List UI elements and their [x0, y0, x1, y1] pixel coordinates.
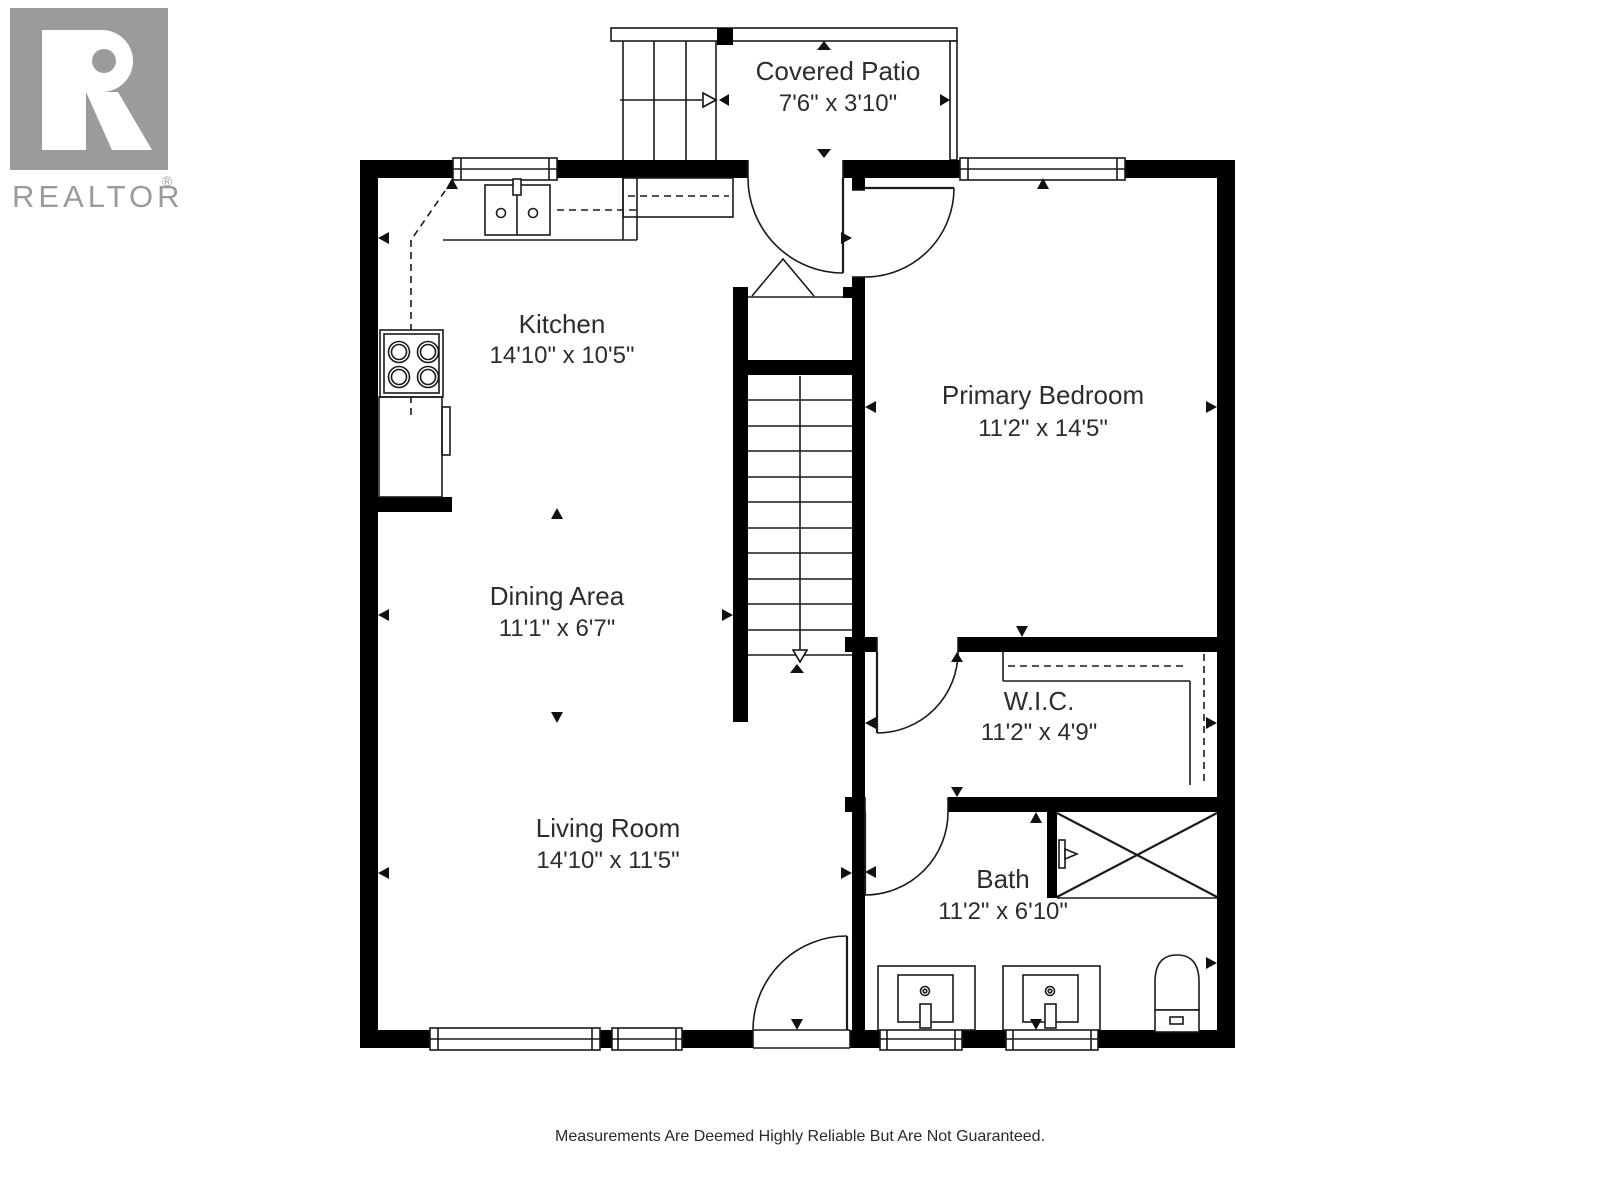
vanity-sink-2	[1003, 966, 1100, 1030]
entry-closet	[748, 259, 843, 297]
toilet-icon	[1155, 955, 1199, 1032]
living-door-swing-arc	[753, 936, 847, 1030]
primary-bedroom-dimensions: 11'2" x 14'5"	[978, 415, 1108, 442]
front-door-swing-arc	[748, 178, 843, 273]
stove-icon	[380, 330, 443, 397]
stair-down-arrow-icon	[793, 650, 807, 662]
measurements-disclaimer: Measurements Are Deemed Highly Reliable …	[555, 1128, 1045, 1145]
exterior-steps	[620, 41, 716, 160]
wic-dimensions: 11'2" x 4'9"	[981, 719, 1098, 746]
living-room-exterior-door	[753, 936, 850, 1048]
hall-bedroom-wall	[852, 277, 865, 812]
patio-top-wall	[611, 28, 957, 41]
bedroom-window	[960, 158, 1125, 180]
covered-patio-dimensions: 7'6" x 3'10"	[779, 90, 897, 117]
label-living-room: Living Room 14'10" x 11'5"	[536, 813, 681, 874]
bath-name: Bath	[976, 864, 1030, 894]
living-room-name: Living Room	[536, 813, 681, 843]
kitchen-window	[453, 158, 557, 180]
bath-window-2	[1006, 1028, 1098, 1050]
living-room-dimensions: 14'10" x 11'5"	[536, 847, 679, 874]
wic-door-swing-arc	[877, 652, 958, 733]
label-primary-bedroom: Primary Bedroom 11'2" x 14'5"	[942, 380, 1144, 442]
label-covered-patio: Covered Patio 7'6" x 3'10"	[756, 56, 921, 117]
bath-door-swing-arc	[865, 812, 948, 895]
dining-area-dimensions: 11'1" x 6'7"	[499, 615, 616, 642]
label-dining-area: Dining Area 11'1" x 6'7"	[490, 581, 625, 642]
left-wall	[360, 160, 378, 1048]
bath-window-1	[880, 1028, 962, 1050]
closet-bottom-wall	[733, 360, 865, 375]
stair-left-wall	[733, 287, 748, 722]
wic-door	[877, 637, 958, 733]
covered-patio-name: Covered Patio	[756, 56, 921, 86]
vanity-sink-1	[878, 966, 975, 1030]
shower-valve-icon	[1059, 840, 1065, 868]
bedroom-door	[852, 188, 954, 277]
wic-name: W.I.C.	[1004, 686, 1075, 716]
wic-bath-wall	[948, 797, 1217, 812]
kitchen-base-cabinet	[379, 397, 450, 497]
realtor-logo: REALTOR ®	[10, 8, 184, 214]
steps-direction-arrow-icon	[703, 93, 716, 107]
right-wall	[1217, 160, 1235, 1048]
label-kitchen: Kitchen 14'10" x 10'5"	[490, 309, 635, 369]
bath-dimensions: 11'2" x 6'10"	[938, 898, 1068, 925]
realtor-logo-text: REALTOR	[12, 179, 184, 214]
kitchen-dimensions: 14'10" x 10'5"	[490, 342, 635, 369]
shower-head-icon	[1065, 849, 1077, 859]
kitchen-sink	[485, 179, 550, 235]
patio-right-wall	[950, 41, 957, 160]
staircase	[748, 376, 852, 673]
registered-trademark-symbol: ®	[162, 173, 173, 189]
front-door	[748, 160, 843, 273]
patio-post	[717, 28, 733, 45]
kitchen-counter	[411, 178, 733, 420]
primary-bedroom-name: Primary Bedroom	[942, 380, 1144, 410]
bedroom-wic-wall	[958, 637, 1217, 652]
kitchen-name: Kitchen	[519, 309, 606, 339]
shower	[1047, 812, 1217, 898]
kitchen-wall-stub	[378, 497, 452, 512]
bath-door	[865, 797, 948, 895]
faucet-icon	[513, 179, 521, 195]
dining-area-name: Dining Area	[490, 581, 625, 611]
floor-plan-canvas: REALTOR ®	[0, 0, 1600, 1200]
bedroom-door-swing-arc	[865, 188, 954, 277]
label-wic: W.I.C. 11'2" x 4'9"	[981, 686, 1098, 746]
living-room-window-2	[612, 1028, 682, 1050]
living-room-window-1	[430, 1028, 600, 1050]
living-bath-wall	[852, 812, 865, 1030]
